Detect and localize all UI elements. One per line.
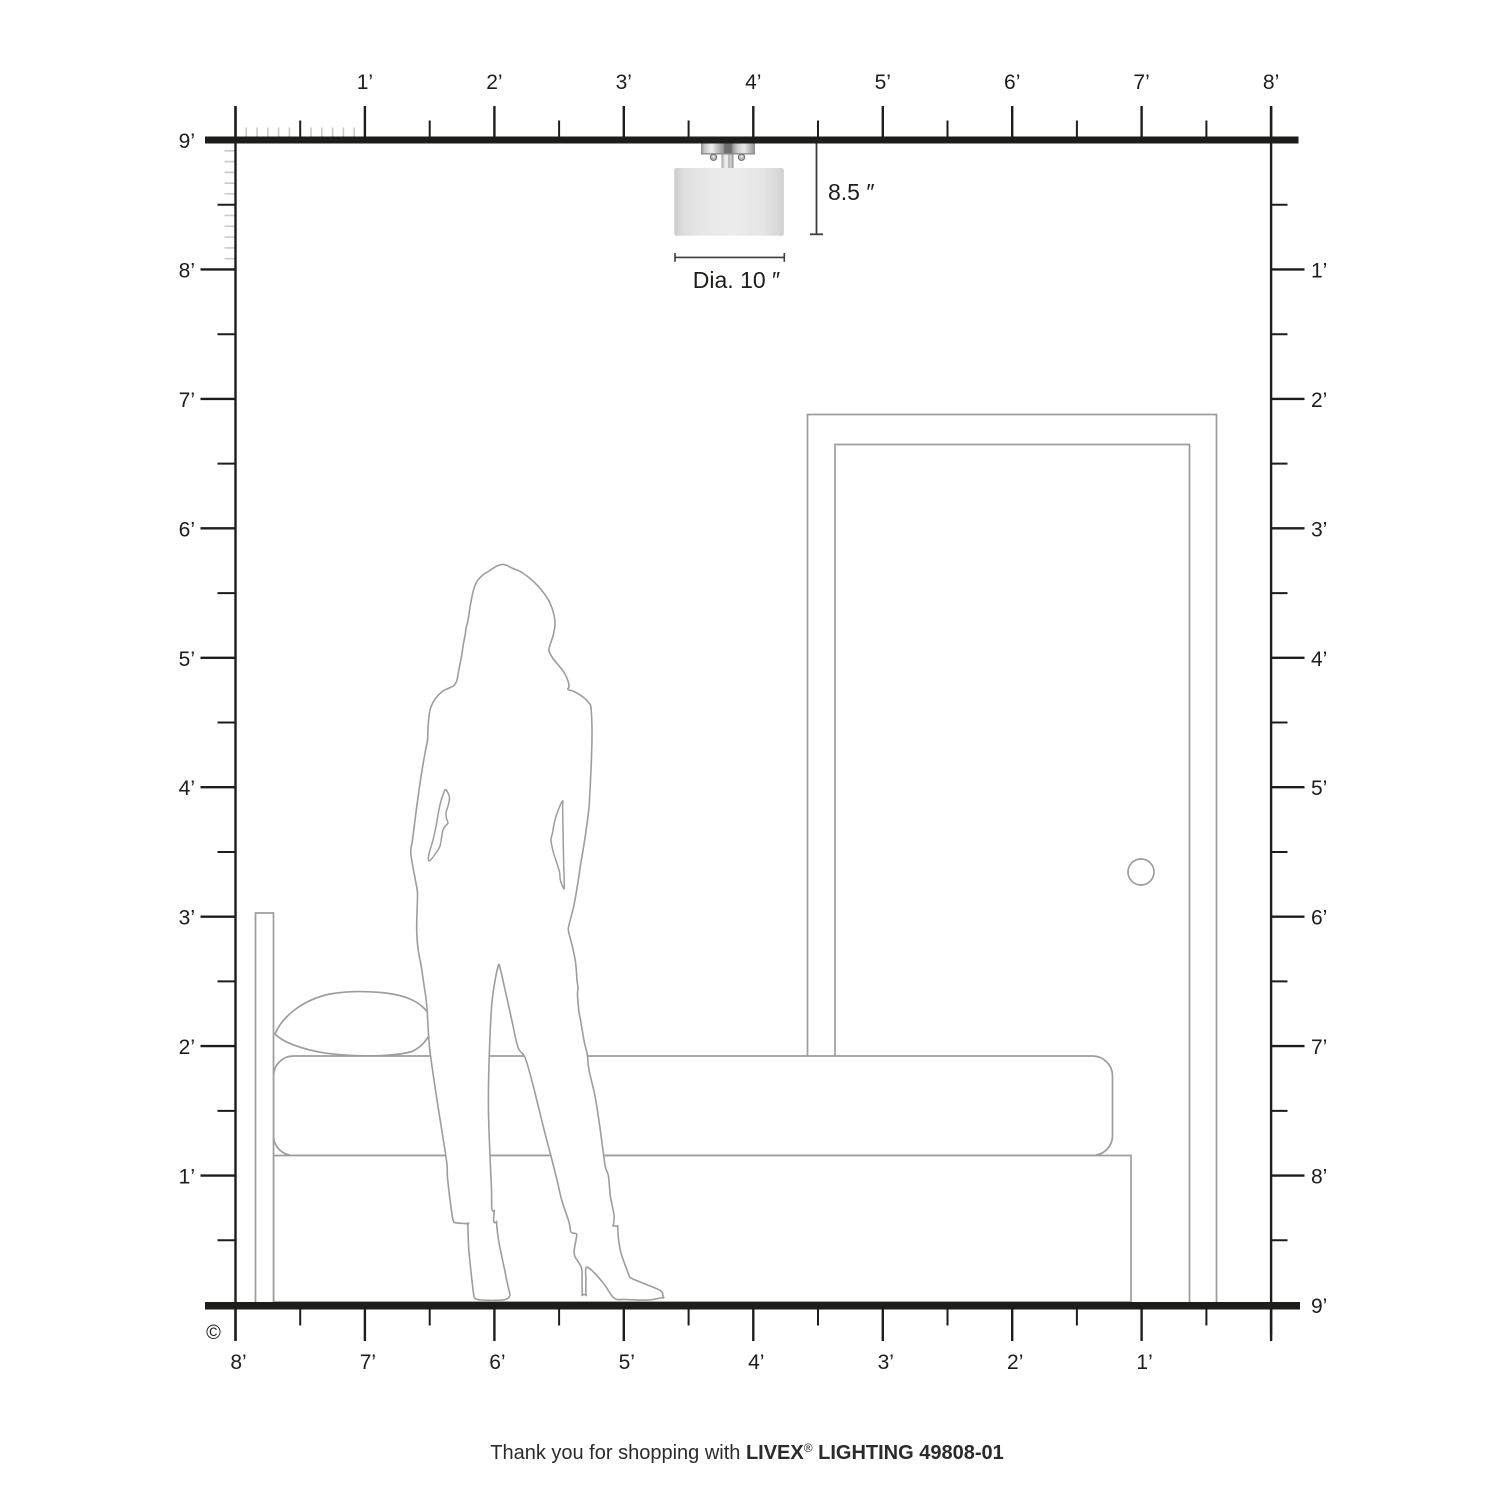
svg-text:1’: 1’	[357, 71, 373, 94]
svg-text:4’: 4’	[745, 71, 761, 94]
svg-text:©: ©	[206, 1322, 221, 1344]
svg-text:6’: 6’	[489, 1351, 505, 1374]
svg-text:7’: 7’	[179, 389, 195, 412]
svg-text:7’: 7’	[360, 1351, 376, 1374]
svg-text:6’: 6’	[1311, 907, 1327, 930]
svg-text:8’: 8’	[230, 1351, 246, 1374]
svg-text:6’: 6’	[1004, 71, 1020, 94]
svg-text:7’: 7’	[1311, 1036, 1327, 1059]
svg-text:2’: 2’	[1311, 389, 1327, 412]
svg-text:2’: 2’	[486, 71, 502, 94]
svg-text:8’: 8’	[1263, 71, 1279, 94]
svg-text:Thank you for shopping with LI: Thank you for shopping with LIVEX® LIGHT…	[490, 1441, 1004, 1464]
svg-text:2’: 2’	[179, 1036, 195, 1059]
svg-text:5’: 5’	[1311, 777, 1327, 800]
svg-text:1’: 1’	[1136, 1351, 1152, 1374]
svg-text:8.5 ″: 8.5 ″	[828, 179, 875, 205]
svg-text:9’: 9’	[179, 130, 195, 153]
svg-text:7’: 7’	[1133, 71, 1149, 94]
svg-text:9’: 9’	[1311, 1295, 1327, 1318]
svg-text:6’: 6’	[179, 518, 195, 541]
svg-text:3’: 3’	[1311, 518, 1327, 541]
svg-text:5’: 5’	[875, 71, 891, 94]
svg-text:5’: 5’	[179, 648, 195, 671]
svg-text:4’: 4’	[1311, 648, 1327, 671]
svg-text:3’: 3’	[179, 907, 195, 930]
svg-text:8’: 8’	[1311, 1166, 1327, 1189]
svg-text:3’: 3’	[878, 1351, 894, 1374]
svg-text:8’: 8’	[179, 259, 195, 282]
svg-text:1’: 1’	[179, 1166, 195, 1189]
svg-text:1’: 1’	[1311, 259, 1327, 282]
svg-text:Dia. 10 ″: Dia. 10 ″	[693, 267, 780, 293]
svg-text:3’: 3’	[616, 71, 632, 94]
svg-text:4’: 4’	[748, 1351, 764, 1374]
svg-text:5’: 5’	[619, 1351, 635, 1374]
svg-text:4’: 4’	[179, 777, 195, 800]
svg-text:2’: 2’	[1007, 1351, 1023, 1374]
